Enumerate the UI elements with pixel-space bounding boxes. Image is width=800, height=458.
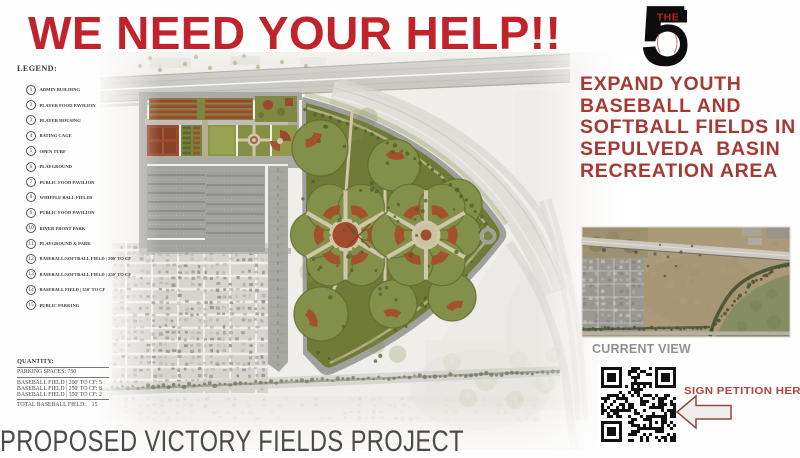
svg-text:THE: THE xyxy=(657,12,680,24)
